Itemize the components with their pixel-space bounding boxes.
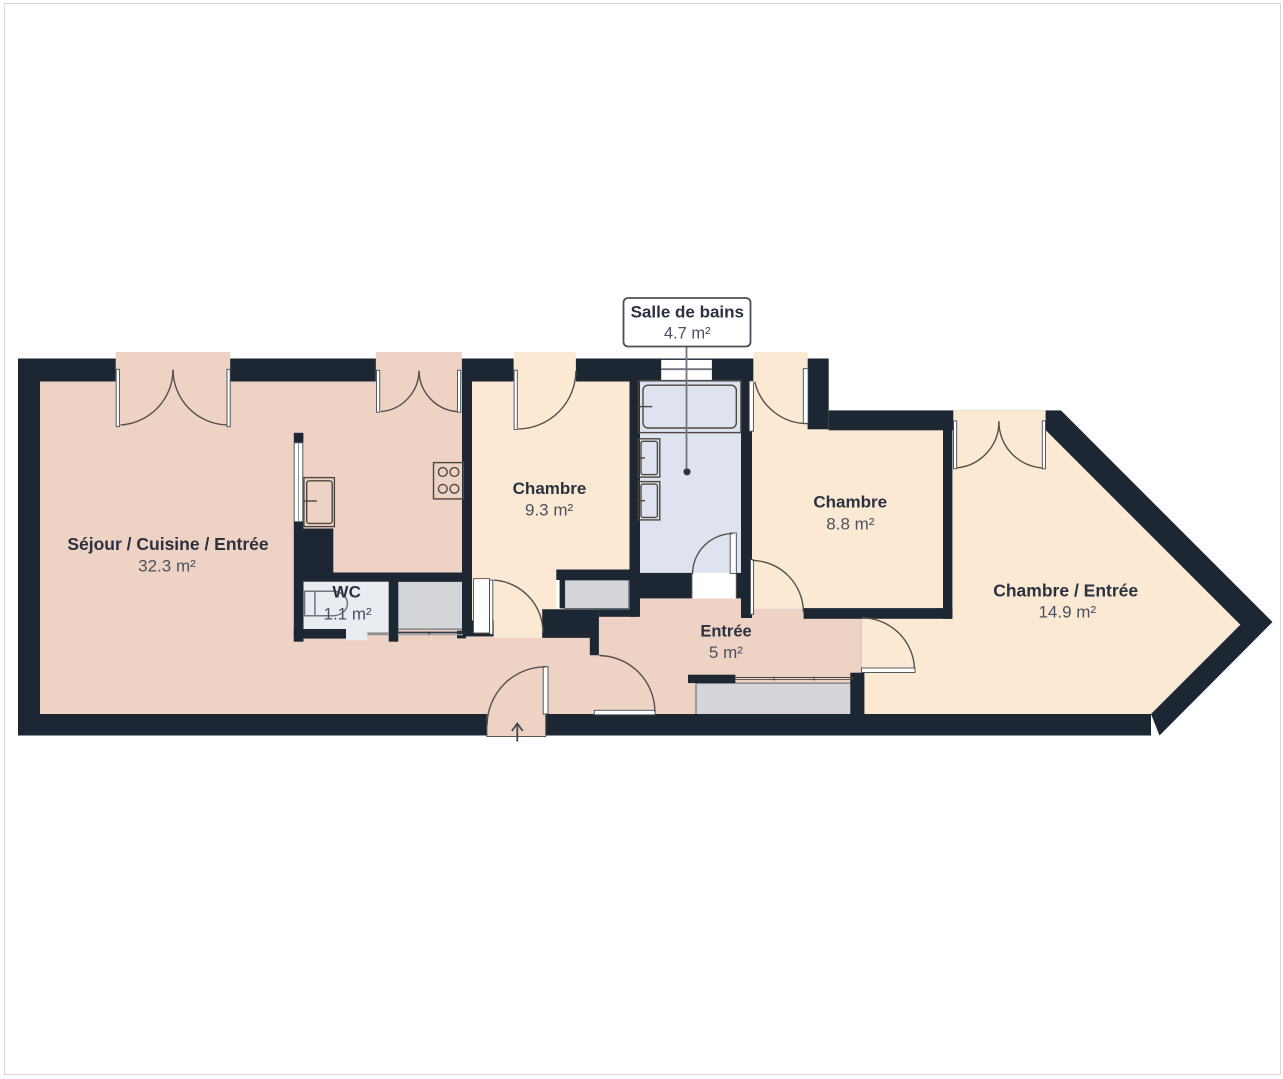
svg-text:32.3 m²: 32.3 m² [138, 557, 196, 576]
svg-text:Chambre: Chambre [513, 479, 587, 498]
svg-text:1.1 m²: 1.1 m² [324, 604, 373, 623]
svg-text:8.8 m²: 8.8 m² [826, 515, 875, 534]
svg-text:5 m²: 5 m² [709, 643, 743, 662]
svg-text:Salle de bains: Salle de bains [631, 303, 744, 322]
svg-text:Chambre: Chambre [813, 492, 887, 511]
svg-text:WC: WC [332, 583, 361, 602]
svg-text:14.9 m²: 14.9 m² [1038, 602, 1096, 621]
svg-text:9.3 m²: 9.3 m² [525, 500, 574, 519]
svg-text:Entrée: Entrée [700, 623, 751, 641]
svg-text:Séjour / Cuisine / Entrée: Séjour / Cuisine / Entrée [67, 534, 269, 554]
svg-text:4.7 m²: 4.7 m² [664, 325, 711, 343]
svg-text:Chambre / Entrée: Chambre / Entrée [993, 580, 1138, 600]
